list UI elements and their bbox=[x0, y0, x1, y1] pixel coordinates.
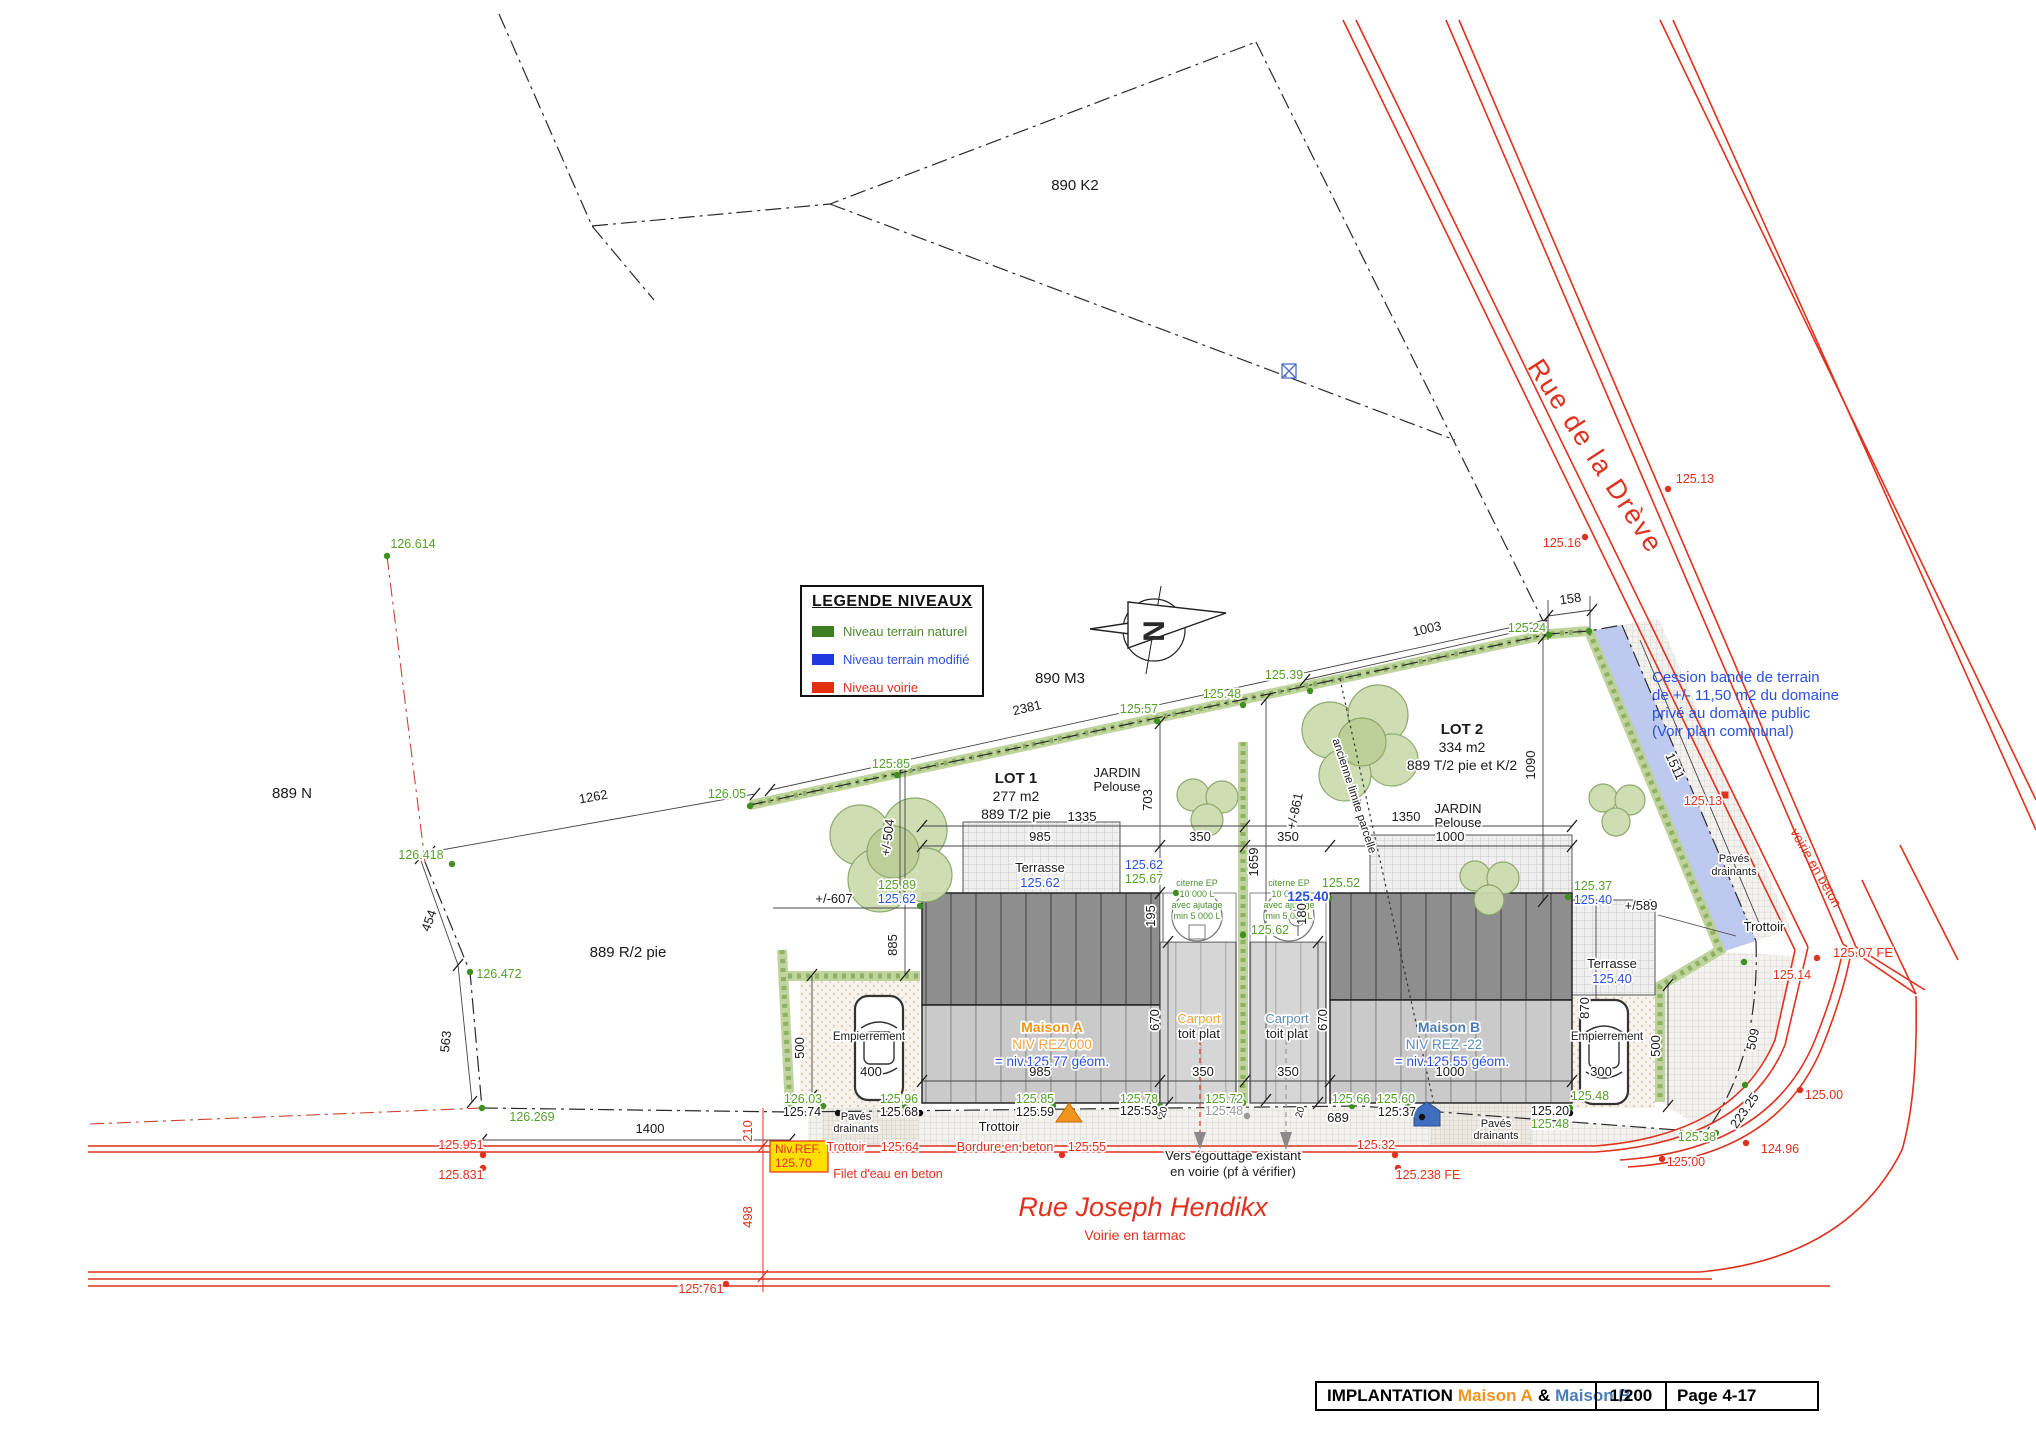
level: 125.39 bbox=[1265, 668, 1303, 682]
level-dot bbox=[1419, 1114, 1425, 1120]
street-surface-dreve: voirie en beton bbox=[1787, 826, 1844, 910]
north-letter: N bbox=[1138, 620, 1171, 642]
cession-line-4: (Voir plan communal) bbox=[1652, 723, 1794, 740]
level: 125.67 bbox=[1125, 872, 1163, 886]
level-dot bbox=[1546, 632, 1552, 638]
cistern-b-1: citerne EP bbox=[1268, 878, 1310, 888]
level: 125.57 bbox=[1120, 702, 1158, 716]
level: 125.13 bbox=[1684, 794, 1722, 808]
level-dot bbox=[1154, 718, 1160, 724]
legend-item-modifie: Niveau terrain modifié bbox=[812, 652, 982, 667]
road-label: Bordure en beton bbox=[957, 1140, 1054, 1154]
terrasse-a-level: 125.62 bbox=[1020, 875, 1060, 890]
dim: 1000 bbox=[1436, 829, 1465, 844]
level: 125.32 bbox=[1357, 1138, 1395, 1152]
maison-a-name: Maison A bbox=[1021, 1019, 1083, 1035]
dim: 500 bbox=[792, 1037, 807, 1059]
level-dot bbox=[1240, 702, 1246, 708]
maison-a-niv: NIV REZ 000 bbox=[1012, 1037, 1092, 1052]
trottoir-strip bbox=[808, 1106, 1717, 1146]
legend-item-label: Niveau voirie bbox=[843, 680, 918, 695]
dim: 1262 bbox=[578, 787, 609, 807]
maison-a-dark bbox=[922, 893, 1160, 1005]
cession-note: Cession bande de terrain de +/- 11,50 m2… bbox=[1652, 669, 1839, 740]
level: 125.66 bbox=[1332, 1092, 1370, 1106]
level: 125.62 bbox=[1125, 858, 1163, 872]
paves-r-1: Pavés bbox=[1719, 853, 1750, 865]
legend-item-label: Niveau terrain naturel bbox=[843, 624, 967, 639]
level-dot bbox=[1307, 688, 1313, 694]
site-plan-page: N Rue de la Drève voirie en beton Rue Jo… bbox=[0, 0, 2036, 1440]
dim: 689 bbox=[1327, 1110, 1349, 1125]
blue-swatch-icon bbox=[812, 654, 834, 665]
level: 125.68 bbox=[880, 1105, 918, 1119]
level: 125.07 FE bbox=[1833, 945, 1893, 960]
lot2-area: 334 m2 bbox=[1439, 739, 1486, 755]
cistern-a-1: citerne EP bbox=[1176, 878, 1218, 888]
dim: 885 bbox=[885, 934, 900, 956]
level: 125.00 bbox=[1805, 1088, 1843, 1102]
north-arrow-icon: N bbox=[1090, 586, 1226, 674]
cistern-a-2: 10 000 L bbox=[1179, 889, 1214, 899]
niv-ref-value: 125.70 bbox=[775, 1156, 812, 1170]
level-dot bbox=[1392, 1152, 1398, 1158]
lot2-jardin: JARDIN bbox=[1435, 801, 1482, 816]
dim: 870 bbox=[1577, 997, 1592, 1019]
legend-item-label: Niveau terrain modifié bbox=[843, 652, 969, 667]
level-dot bbox=[1586, 628, 1592, 634]
level-dot bbox=[1814, 955, 1820, 961]
level-dot bbox=[1059, 1152, 1065, 1158]
dim: +/-607 bbox=[815, 891, 852, 906]
level: 125.00 bbox=[1667, 1155, 1705, 1169]
lot2-ref: 889 T/2 pie et K/2 bbox=[1407, 757, 1517, 773]
red-swatch-icon bbox=[812, 682, 834, 693]
bush-lot1 bbox=[1177, 779, 1238, 836]
cistern-a-4: min 5 000 L bbox=[1173, 911, 1220, 921]
level-dot bbox=[1722, 792, 1729, 799]
level: 125.761 bbox=[678, 1282, 723, 1296]
lot2-title: LOT 2 bbox=[1441, 721, 1484, 738]
level-dot bbox=[1743, 1140, 1749, 1146]
level: 126.269 bbox=[509, 1110, 554, 1124]
paves-b-2: drainants bbox=[1473, 1130, 1519, 1142]
dim: 195 bbox=[1143, 905, 1158, 927]
level-dot bbox=[1173, 890, 1179, 896]
lot1-ref: 889 T/2 pie bbox=[981, 806, 1051, 822]
maison-a-geom: = niv.125.77 géom. bbox=[995, 1054, 1109, 1069]
paves-b-1: Pavés bbox=[1481, 1118, 1512, 1130]
level-dot bbox=[1797, 1087, 1803, 1093]
maison-b-name: Maison B bbox=[1418, 1019, 1480, 1035]
car-icon-a bbox=[855, 996, 903, 1100]
level: 125.55 bbox=[1068, 1140, 1106, 1154]
tree-lot2 bbox=[1302, 685, 1418, 801]
junction-flare bbox=[1843, 845, 1958, 994]
note-egouttage-2: en voirie (pf à vérifier) bbox=[1170, 1164, 1296, 1179]
paves-r-2: drainants bbox=[1711, 866, 1757, 878]
dim: +/589 bbox=[1625, 898, 1658, 913]
carport-b-label: Carport bbox=[1265, 1011, 1309, 1026]
level: 125.62 bbox=[878, 892, 916, 906]
level-dot bbox=[1244, 1113, 1250, 1119]
dim: 500 bbox=[1648, 1035, 1663, 1057]
level: 125.52 bbox=[1322, 876, 1360, 890]
lot2-pelouse: Pelouse bbox=[1435, 815, 1482, 830]
trottoir-south: Trottoir bbox=[979, 1119, 1020, 1134]
drawing-title: IMPLANTATION Maison A & Maison B bbox=[1317, 1383, 1595, 1409]
level: 126.472 bbox=[476, 967, 521, 981]
niv-ref-label: Niv.REF. bbox=[775, 1142, 821, 1156]
legend-title: LEGENDE NIVEAUX bbox=[812, 593, 982, 611]
survey-cross-icon bbox=[1282, 364, 1296, 378]
parcel-889n: 889 N bbox=[272, 785, 312, 802]
level: 125.62 bbox=[1251, 923, 1289, 937]
lot1-pelouse: Pelouse bbox=[1094, 779, 1141, 794]
dim: 985 bbox=[1029, 829, 1051, 844]
level: 125.48 bbox=[1571, 1089, 1609, 1103]
hendikx-south-lines bbox=[88, 1272, 1830, 1286]
level-dot bbox=[467, 969, 473, 975]
level-dot bbox=[384, 553, 390, 559]
level: 125.60 bbox=[1377, 1092, 1415, 1106]
level-dot bbox=[917, 903, 923, 909]
legend-item-voirie: Niveau voirie bbox=[812, 680, 982, 695]
title-implantation: IMPLANTATION bbox=[1327, 1386, 1453, 1406]
empierrement-a: Empierrement bbox=[833, 1031, 906, 1043]
level: 125.16 bbox=[1543, 536, 1581, 550]
level: 126.03 bbox=[784, 1092, 822, 1106]
level: 125.64 bbox=[881, 1140, 919, 1154]
title-block: IMPLANTATION Maison A & Maison B 1/200 P… bbox=[1315, 1381, 1819, 1411]
carport-b-sub: toit plat bbox=[1266, 1026, 1308, 1041]
level: 125.96 bbox=[880, 1092, 918, 1106]
street-name-hendikx: Rue Joseph Hendikx bbox=[1018, 1192, 1269, 1222]
dim: 1400 bbox=[636, 1121, 665, 1136]
level: 125.24 bbox=[1508, 621, 1546, 635]
legend-niveaux: LEGENDE NIVEAUX Niveau terrain naturel N… bbox=[800, 585, 984, 697]
level: 125.53 bbox=[1120, 1104, 1158, 1118]
level: 125.89 bbox=[878, 878, 916, 892]
dim: 454 bbox=[418, 908, 440, 934]
level-dot bbox=[894, 772, 900, 778]
cistern-a-3: avec ajutage bbox=[1171, 900, 1222, 910]
level-dot bbox=[480, 1152, 486, 1158]
dim: 350 bbox=[1192, 1064, 1214, 1079]
parcel-890m3: 890 M3 bbox=[1035, 670, 1085, 687]
bush-east bbox=[1589, 784, 1645, 836]
level: 125.40 bbox=[1287, 889, 1328, 904]
level-dot bbox=[747, 803, 753, 809]
level-dot bbox=[723, 1281, 729, 1287]
dim: 2381 bbox=[1011, 697, 1043, 718]
note-egouttage-1: Vers égouttage existant bbox=[1165, 1148, 1301, 1163]
street-name-dreve: Rue de la Drève bbox=[1522, 354, 1670, 559]
dim: 350 bbox=[1189, 829, 1211, 844]
level: 125.48 bbox=[1203, 687, 1241, 701]
road-label: Trottoir bbox=[826, 1140, 865, 1154]
dim: 1335 bbox=[1068, 809, 1097, 824]
level-dot bbox=[1742, 1082, 1748, 1088]
level: 125.48 bbox=[1205, 1104, 1243, 1118]
dim: 210 bbox=[740, 1120, 755, 1142]
level: 125.48 bbox=[1531, 1117, 1569, 1131]
title-maison-a: Maison A bbox=[1458, 1386, 1533, 1406]
level: 125.37 bbox=[1378, 1105, 1416, 1119]
level-dot bbox=[449, 861, 455, 867]
cession-line-2: de +/- 11,50 m2 du domaine bbox=[1652, 687, 1839, 704]
dim: 300 bbox=[1590, 1064, 1612, 1079]
level: 125.14 bbox=[1773, 968, 1811, 982]
level: 125.831 bbox=[438, 1168, 483, 1182]
dim: 1000 bbox=[1436, 1064, 1465, 1079]
lot1-jardin: JARDIN bbox=[1094, 765, 1141, 780]
dim: 498 bbox=[740, 1206, 755, 1228]
level: 125.37 bbox=[1574, 879, 1612, 893]
carport-a-sub: toit plat bbox=[1178, 1026, 1220, 1041]
drawing-scale: 1/200 bbox=[1595, 1383, 1665, 1409]
level: 125.85 bbox=[872, 757, 910, 771]
dim: 670 bbox=[1315, 1009, 1330, 1031]
level-dot bbox=[1582, 534, 1588, 540]
title-ampersand: & bbox=[1538, 1386, 1550, 1406]
empierrement-b: Empierrement bbox=[1571, 1031, 1644, 1043]
level: 125.13 bbox=[1676, 472, 1714, 486]
trottoir-east: Trottoir bbox=[1744, 919, 1785, 934]
level: 125.85 bbox=[1016, 1092, 1054, 1106]
level: 125.74 bbox=[783, 1105, 821, 1119]
maison-b-niv: NIV REZ -22 bbox=[1406, 1037, 1483, 1052]
dim: 703 bbox=[1140, 789, 1155, 811]
dim: 1350 bbox=[1392, 809, 1421, 824]
page-number: Page 4-17 bbox=[1665, 1383, 1817, 1409]
cession-line-1: Cession bande de terrain bbox=[1652, 669, 1820, 686]
dim: 158 bbox=[1559, 590, 1583, 608]
dim: 1003 bbox=[1411, 618, 1443, 639]
level: 125.20 bbox=[1531, 1104, 1569, 1118]
green-swatch-icon bbox=[812, 626, 834, 637]
parcel-890k2: 890 K2 bbox=[1051, 177, 1099, 194]
dim: 400 bbox=[860, 1064, 882, 1079]
level-dot bbox=[479, 1105, 485, 1111]
street-surface-hendikx: Voirie en tarmac bbox=[1084, 1227, 1185, 1243]
level: 126.05 bbox=[708, 787, 746, 801]
carport-a-label: Carport bbox=[1177, 1011, 1221, 1026]
level-dot bbox=[1565, 894, 1571, 900]
level: 125.40 bbox=[1574, 893, 1612, 907]
paves-a-2: drainants bbox=[833, 1123, 879, 1135]
level-dot bbox=[1659, 1156, 1665, 1162]
dim: 563 bbox=[437, 1030, 454, 1053]
legend-item-naturel: Niveau terrain naturel bbox=[812, 624, 982, 639]
dim: 1659 bbox=[1246, 848, 1261, 877]
dim: 985 bbox=[1029, 1064, 1051, 1079]
dim: 350 bbox=[1277, 1064, 1299, 1079]
lot1-title: LOT 1 bbox=[995, 770, 1038, 787]
paves-a-1: Pavés bbox=[841, 1111, 872, 1123]
level: 125.38 bbox=[1678, 1130, 1716, 1144]
dim: 670 bbox=[1147, 1009, 1162, 1031]
level-dot bbox=[1665, 486, 1671, 492]
parcel-889r2: 889 R/2 pie bbox=[590, 944, 667, 961]
terrasse-b-level: 125.40 bbox=[1592, 971, 1632, 986]
level-dot bbox=[1240, 932, 1246, 938]
terrasse-b-label: Terrasse bbox=[1587, 956, 1637, 971]
dim: +/-861 bbox=[1283, 791, 1305, 831]
level-dot bbox=[1741, 959, 1747, 965]
level: 125.238 FE bbox=[1396, 1168, 1461, 1182]
cession-line-3: privé au domaine public bbox=[1652, 705, 1811, 722]
dim: 180 bbox=[1294, 903, 1309, 925]
level: 125.951 bbox=[438, 1138, 483, 1152]
level: 126.614 bbox=[390, 537, 435, 551]
lot1-area: 277 m2 bbox=[993, 788, 1040, 804]
dim: 1090 bbox=[1523, 751, 1538, 780]
terrasse-a-label: Terrasse bbox=[1015, 860, 1065, 875]
level: 124.96 bbox=[1761, 1142, 1799, 1156]
implantation-drawing: N Rue de la Drève voirie en beton Rue Jo… bbox=[0, 0, 2036, 1440]
cistern-a-access bbox=[1189, 925, 1205, 939]
level: 125.59 bbox=[1016, 1105, 1054, 1119]
level: 126.418 bbox=[398, 848, 443, 862]
road-label: Filet d'eau en beton bbox=[833, 1167, 942, 1181]
maison-b-dark bbox=[1330, 893, 1572, 1000]
niv-ref-box: Niv.REF. 125.70 bbox=[770, 1141, 828, 1172]
